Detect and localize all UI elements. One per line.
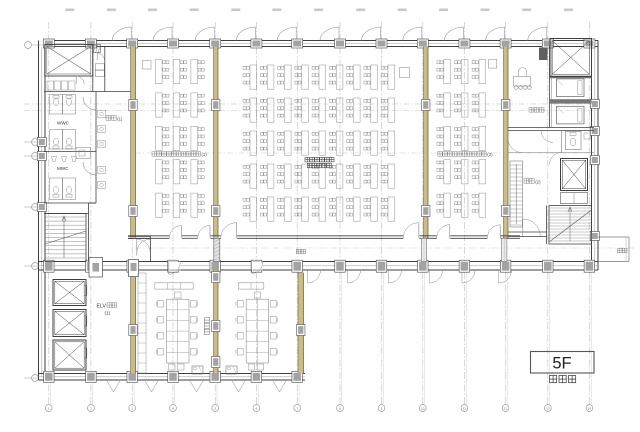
svg-text:5F: 5F bbox=[552, 355, 571, 373]
svg-text:14: 14 bbox=[588, 406, 592, 410]
svg-text:(1): (1) bbox=[202, 152, 208, 157]
svg-text:ELV: ELV bbox=[97, 303, 107, 309]
svg-text:13: 13 bbox=[546, 406, 550, 410]
svg-text:(1): (1) bbox=[105, 310, 111, 315]
svg-text:(2): (2) bbox=[487, 152, 493, 157]
svg-text:(2): (2) bbox=[535, 180, 541, 185]
svg-text:10: 10 bbox=[421, 406, 425, 410]
svg-text:(1): (1) bbox=[117, 117, 123, 122]
svg-text:11: 11 bbox=[463, 406, 466, 410]
svg-text:WWC: WWC bbox=[57, 120, 70, 125]
svg-text:MWC: MWC bbox=[57, 166, 69, 171]
svg-text:12: 12 bbox=[504, 406, 508, 410]
